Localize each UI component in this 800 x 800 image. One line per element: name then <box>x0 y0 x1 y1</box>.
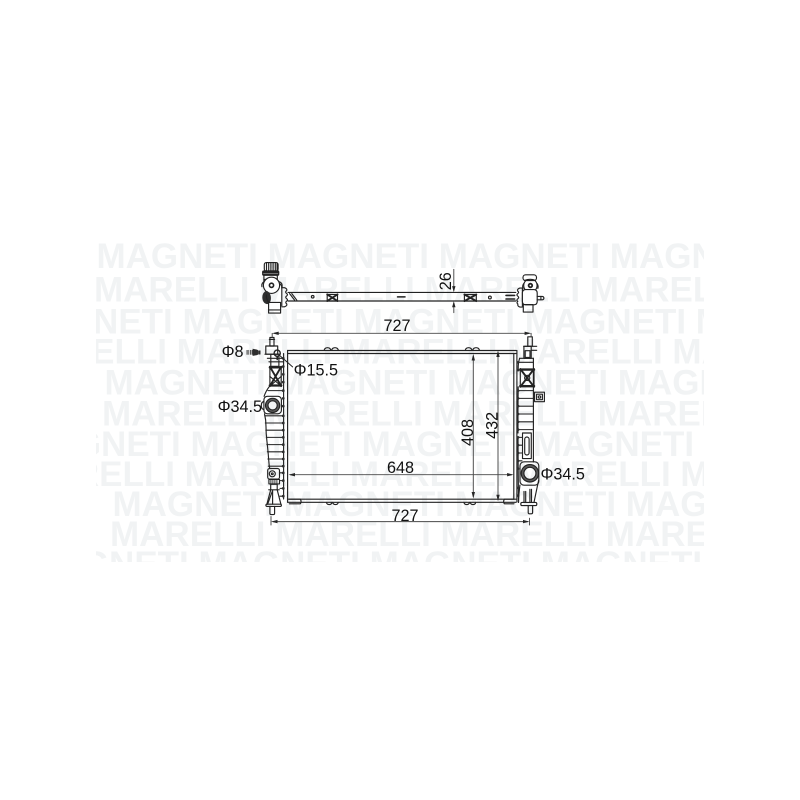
svg-text:648: 648 <box>387 459 414 477</box>
svg-text:727: 727 <box>391 507 418 525</box>
svg-text:Φ34.5: Φ34.5 <box>541 465 585 483</box>
svg-text:Φ15.5: Φ15.5 <box>294 362 338 380</box>
svg-text:432: 432 <box>483 412 501 439</box>
svg-text:Φ8: Φ8 <box>222 343 244 361</box>
svg-text:26: 26 <box>437 272 455 290</box>
svg-text:727: 727 <box>383 317 410 335</box>
svg-text:Φ34.5: Φ34.5 <box>218 398 262 416</box>
svg-text:408: 408 <box>459 419 477 446</box>
svg-text:MAGNETI MAGNETI MAGNETI MAGNET: MAGNETI MAGNETI MAGNETI MAGNETI MAGNETI <box>27 545 800 584</box>
